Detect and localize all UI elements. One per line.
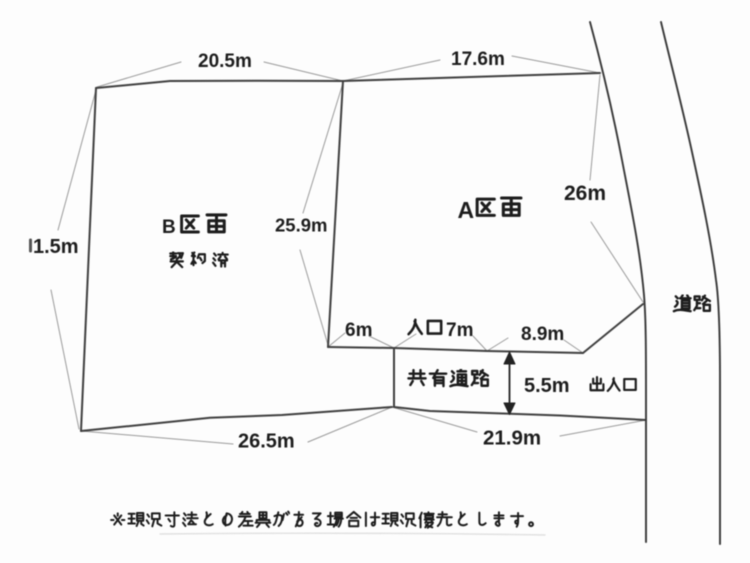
svg-text:20.5m: 20.5m (198, 51, 252, 72)
svg-text:17.6m: 17.6m (451, 49, 505, 70)
svg-text:7m: 7m (446, 320, 473, 341)
svg-text:1.5m: 1.5m (33, 236, 79, 258)
svg-text:26m: 26m (564, 182, 606, 205)
svg-text:B: B (162, 217, 176, 238)
svg-text:21.9m: 21.9m (483, 427, 541, 450)
svg-text:25.9m: 25.9m (275, 215, 327, 236)
svg-text:26.5m: 26.5m (238, 431, 295, 453)
svg-text:A: A (458, 197, 475, 223)
svg-text:6m: 6m (345, 320, 372, 341)
svg-text:8.9m: 8.9m (521, 324, 564, 345)
svg-text:5.5m: 5.5m (524, 375, 570, 397)
